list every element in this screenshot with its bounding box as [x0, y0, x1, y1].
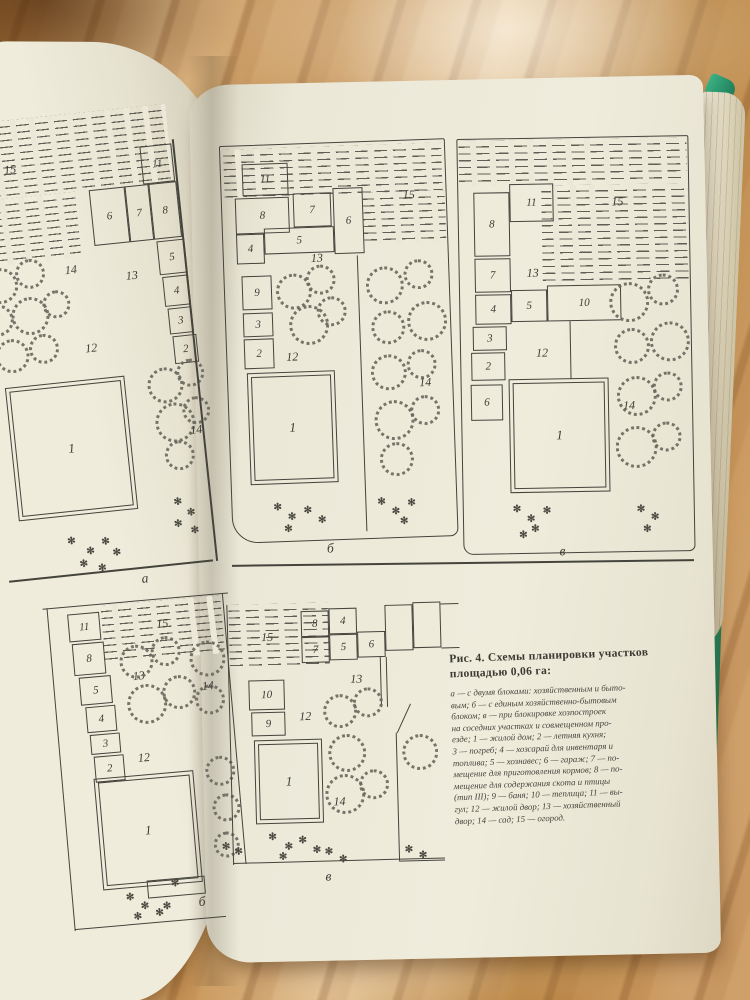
flower-icon: ✻	[101, 536, 110, 548]
neighbour-zone-block	[384, 604, 413, 651]
zone-block: 6	[471, 384, 504, 421]
plot-boundary-line	[75, 916, 227, 931]
zone-number: 6	[484, 397, 490, 409]
zone-number: 5	[169, 251, 176, 264]
flower-icon: ✻	[513, 504, 522, 515]
flower-icon: ✻	[339, 854, 348, 865]
zone-number: 13	[350, 672, 362, 687]
neighbour-boundary-line	[397, 704, 411, 734]
zone-number: 15	[402, 187, 415, 202]
zone-number: 15	[156, 616, 169, 632]
zone-number: 8	[312, 618, 318, 630]
zone-number: 2	[106, 762, 113, 774]
flower-icon: ✻	[126, 892, 135, 904]
zone-number: 13	[125, 268, 139, 284]
flower-icon: ✻	[318, 515, 327, 526]
tree-icon	[402, 734, 439, 771]
neighbour-zone-block	[412, 601, 441, 648]
flower-icon: ✻	[190, 525, 199, 537]
flower-icon: ✻	[313, 845, 322, 856]
house-outline: 1	[247, 370, 339, 485]
zone-number: 14	[333, 794, 345, 809]
flower-icon: ✻	[400, 516, 409, 527]
flower-icon: ✻	[531, 524, 540, 535]
zone-block: 3	[243, 312, 274, 337]
zone-number: 8	[86, 653, 93, 665]
flower-icon: ✻	[651, 512, 660, 523]
zone-number: 2	[182, 343, 189, 356]
zone-number: 1	[556, 427, 563, 443]
zone-block: 5	[329, 634, 358, 661]
flower-icon: ✻	[133, 911, 142, 923]
zone-number: 7	[490, 269, 496, 281]
zone-number: 15	[611, 194, 623, 209]
plot-scheme-top-middle: 15 11 8 7 6 5 4 13 9 3 2 12 1 14 ✻ ✻ ✻ ✻…	[215, 134, 466, 562]
zone-block: 4	[236, 234, 265, 265]
zone-number: 4	[490, 303, 496, 315]
zone-block: 6	[89, 187, 131, 246]
flower-icon: ✻	[162, 901, 171, 913]
shared-drive-line	[386, 657, 389, 707]
flower-icon: ✻	[303, 505, 312, 516]
flower-icon: ✻	[140, 901, 149, 913]
flower-icon: ✻	[174, 518, 183, 530]
zone-number: 5	[93, 684, 100, 696]
zone-block: 5	[511, 290, 548, 323]
zone-number: 12	[84, 340, 98, 356]
photo-of-open-book: 15 11 6 7 8 14 13 5 4 3 2 12 1 14 ✻ ✻ ✻ …	[0, 0, 750, 1000]
zone-block: 5	[264, 226, 335, 254]
flower-icon: ✻	[186, 507, 195, 519]
zone-number: 12	[299, 709, 311, 724]
flower-icon: ✻	[288, 512, 297, 523]
zone-number: 15	[261, 630, 273, 645]
zone-number: 9	[266, 718, 272, 730]
zone-block: 9	[251, 712, 286, 737]
house-outline: 1	[254, 739, 324, 825]
flower-icon: ✻	[79, 558, 88, 570]
zone-number: 3	[255, 319, 261, 331]
garden-beds-hatch	[0, 192, 82, 269]
zone-number: 6	[368, 638, 374, 650]
figure-caption-body: а — с двумя блоками: хозяйственным и быт…	[450, 680, 703, 828]
zone-number: 2	[256, 348, 262, 360]
zone-number: 5	[526, 300, 532, 312]
flower-icon: ✻	[67, 536, 76, 548]
flower-icon: ✻	[643, 524, 652, 535]
zone-number: 14	[419, 375, 432, 390]
zone-number: 10	[261, 689, 272, 701]
zone-number: 1	[67, 440, 75, 457]
tree-icon	[14, 257, 47, 290]
zone-block: 7	[293, 192, 332, 227]
flower-icon: ✻	[298, 835, 307, 846]
scheme-letter-label: б	[327, 540, 334, 556]
neighbour-boundary-line	[396, 733, 401, 861]
garden-beds-hatch	[458, 137, 687, 187]
zone-block: 9	[241, 275, 272, 310]
zone-number: 5	[296, 234, 302, 246]
tree-icon	[353, 687, 384, 718]
scheme-letter-label: а	[141, 570, 149, 587]
scheme-letter-label: в	[559, 543, 565, 559]
zone-number: 10	[579, 297, 590, 309]
tree-icon	[28, 332, 61, 365]
zone-block: 3	[90, 732, 122, 755]
zone-number: 4	[248, 243, 254, 255]
zone-number: 12	[536, 346, 548, 361]
zone-block: 8	[301, 610, 330, 637]
zone-block: 11	[242, 163, 289, 197]
zone-block: 2	[471, 352, 505, 381]
zone-block: 10	[248, 680, 285, 711]
house-outline: 1	[509, 377, 611, 493]
scheme-letter-label: в	[325, 868, 331, 884]
flower-icon: ✻	[279, 852, 288, 863]
zone-block: 7	[474, 258, 511, 293]
zone-number: 6	[346, 215, 352, 227]
zone-block: 4	[475, 294, 512, 325]
zone-block: 11	[67, 612, 101, 643]
zone-number: 14	[201, 678, 214, 694]
flower-icon: ✻	[284, 524, 293, 535]
zone-number: 12	[286, 349, 299, 364]
zone-number: 8	[489, 218, 495, 230]
neighbour-block-line	[440, 603, 458, 605]
scheme-letter-label: б	[198, 894, 206, 911]
flower-icon: ✻	[377, 496, 386, 507]
zone-number: 11	[260, 173, 271, 185]
zone-number: 4	[173, 284, 180, 297]
zone-number: 15	[3, 162, 17, 178]
zone-number: 6	[106, 210, 113, 223]
zone-number: 13	[527, 266, 539, 281]
zone-number: 4	[340, 615, 346, 627]
zone-number: 7	[136, 207, 143, 220]
flower-icon: ✻	[419, 850, 428, 861]
flower-icon: ✻	[405, 844, 414, 855]
tree-icon	[0, 337, 31, 374]
figure-caption: Рис. 4. Схемы планировки участков площад…	[449, 644, 703, 828]
house-outline: 1	[5, 376, 138, 522]
zone-number: 1	[286, 773, 293, 789]
zone-number: 3	[102, 737, 109, 749]
flower-icon: ✻	[112, 547, 121, 559]
flower-icon: ✻	[637, 504, 646, 515]
plot-boundary-line	[9, 559, 213, 582]
zone-number: 2	[485, 361, 491, 373]
zone-number: 12	[137, 750, 150, 766]
zone-block: 6	[357, 631, 386, 658]
zone-block: 2	[244, 338, 275, 369]
zone-block: 5	[79, 675, 113, 706]
zone-number: 9	[254, 287, 260, 299]
flower-icon: ✻	[86, 546, 95, 558]
flower-icon: ✻	[173, 496, 182, 508]
zone-number: 11	[526, 197, 536, 209]
zone-number: 14	[623, 398, 635, 413]
flower-icon: ✻	[407, 497, 416, 508]
zone-number: 1	[144, 822, 152, 839]
flower-icon: ✻	[273, 502, 282, 513]
zone-block: 7	[301, 636, 330, 663]
neighbour-block-line	[442, 647, 460, 649]
plot-scheme-top-right: 15 8 11 7 13 4 5 10 3 2 12 6 1 14 ✻ ✻ ✻ …	[454, 131, 701, 565]
zone-block: 11	[139, 143, 175, 184]
flower-icon: ✻	[171, 878, 180, 890]
zone-block: 8	[473, 192, 510, 257]
zone-block: 4	[328, 608, 357, 635]
zone-number: 4	[98, 713, 105, 725]
zone-number: 7	[309, 204, 315, 216]
tree-icon	[328, 733, 367, 772]
zone-number: 7	[313, 644, 319, 656]
zone-number: 3	[177, 314, 184, 327]
zone-number: 14	[64, 262, 78, 278]
tree-icon	[359, 769, 390, 800]
plot-scheme-bottom-middle: 15 8 4 7 5 6 13 10 9 12 1 14 ✻ ✻ ✻ ✻ ✻ ✻…	[222, 591, 470, 897]
house-outline: 1	[94, 770, 203, 890]
zone-number: 8	[259, 210, 265, 222]
zone-block: 6	[332, 187, 364, 254]
zone-number: 8	[162, 204, 169, 217]
zone-number: 11	[79, 621, 90, 634]
flower-icon: ✻	[543, 505, 552, 516]
flower-icon: ✻	[325, 846, 334, 857]
zone-number: 1	[289, 420, 296, 436]
zone-block: 11	[509, 183, 554, 222]
tree-icon	[163, 439, 196, 472]
zone-number: 3	[487, 332, 493, 344]
zone-block: 8	[72, 641, 107, 676]
zone-block: 3	[473, 326, 507, 351]
flower-icon: ✻	[519, 530, 528, 541]
flower-icon: ✻	[268, 832, 277, 843]
zone-number: 5	[341, 641, 347, 653]
zone-number: 11	[152, 157, 163, 170]
zone-block: 4	[85, 705, 117, 734]
